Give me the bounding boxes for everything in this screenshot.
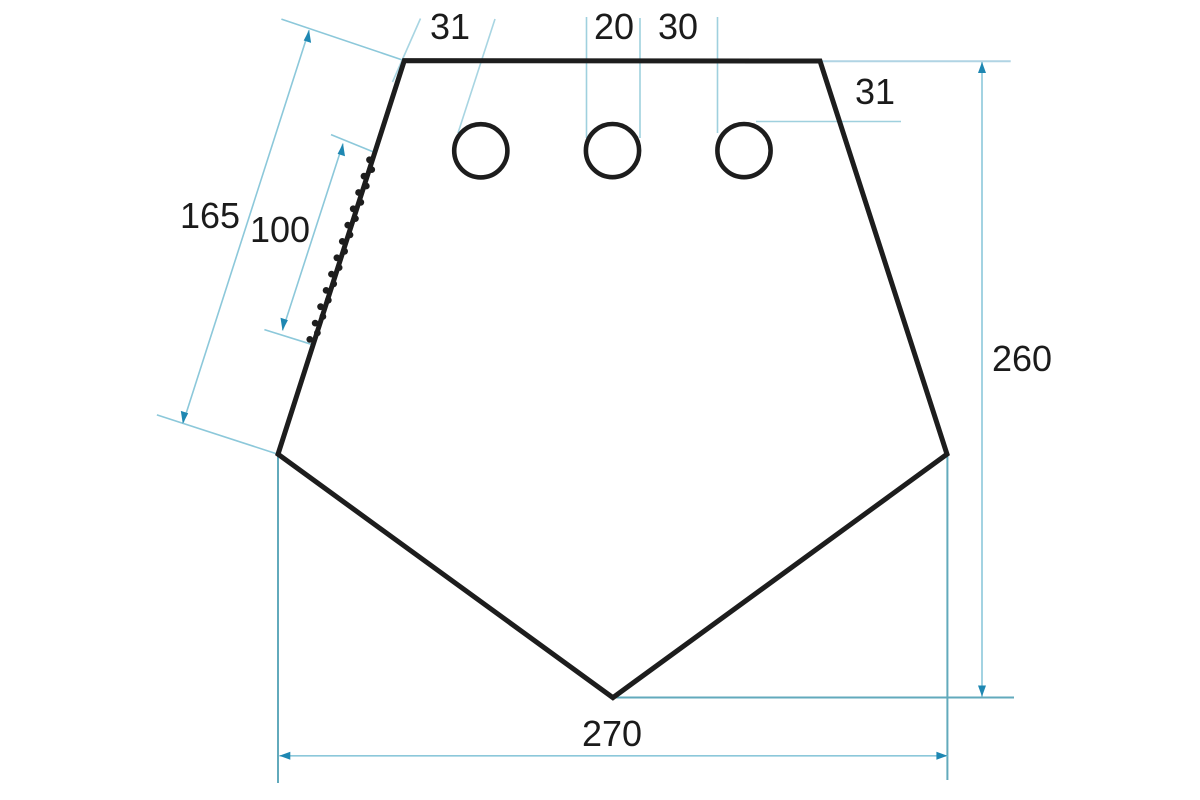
svg-text:260: 260 <box>992 338 1052 379</box>
svg-text:100: 100 <box>250 209 310 250</box>
svg-text:31: 31 <box>430 6 470 47</box>
svg-text:165: 165 <box>180 195 240 236</box>
svg-text:20: 20 <box>594 6 634 47</box>
svg-text:270: 270 <box>582 713 642 754</box>
svg-text:30: 30 <box>658 6 698 47</box>
svg-text:31: 31 <box>855 71 895 112</box>
